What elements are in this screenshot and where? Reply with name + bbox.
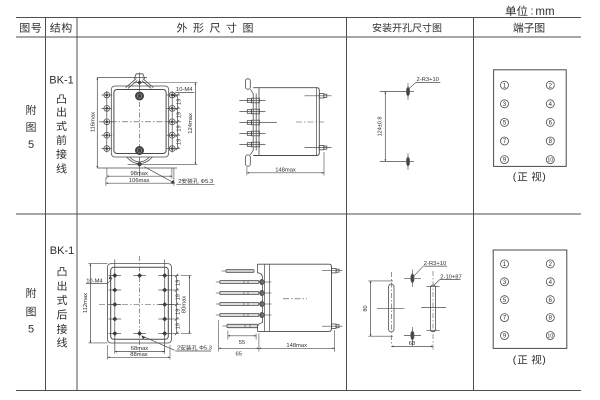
svg-text:19: 19	[177, 112, 183, 118]
svg-text:124±0.8: 124±0.8	[378, 117, 384, 137]
svg-text:BK-1: BK-1	[49, 74, 73, 86]
svg-text:88max: 88max	[130, 352, 148, 358]
svg-text:19: 19	[177, 139, 183, 145]
svg-text:19: 19	[176, 323, 182, 329]
svg-text:19: 19	[177, 125, 183, 131]
svg-text:116max: 116max	[90, 112, 96, 132]
svg-text:5: 5	[28, 139, 34, 151]
svg-text:65: 65	[235, 351, 241, 357]
svg-text:148max: 148max	[275, 167, 296, 173]
svg-text:BK-1: BK-1	[50, 245, 74, 257]
svg-text:106max: 106max	[129, 178, 150, 184]
svg-text:112max: 112max	[83, 293, 89, 313]
svg-text:19: 19	[176, 280, 182, 286]
svg-text:98max: 98max	[130, 171, 148, 177]
svg-text:55: 55	[239, 340, 245, 346]
svg-text:124max: 124max	[188, 113, 194, 134]
svg-text::: :	[530, 5, 533, 17]
svg-text:(: (	[513, 354, 517, 366]
svg-text:10: 10	[547, 334, 553, 340]
svg-text:mm: mm	[535, 6, 554, 18]
svg-text:(: (	[513, 171, 517, 183]
svg-text:80: 80	[363, 305, 369, 311]
svg-text:148max: 148max	[286, 343, 307, 349]
svg-text:80max: 80max	[182, 296, 188, 314]
svg-text:68: 68	[409, 341, 415, 347]
svg-text:5: 5	[28, 324, 34, 336]
svg-text:10: 10	[547, 158, 553, 164]
svg-text:): )	[542, 354, 546, 366]
svg-text:): )	[542, 171, 546, 183]
svg-text:19: 19	[177, 99, 183, 105]
